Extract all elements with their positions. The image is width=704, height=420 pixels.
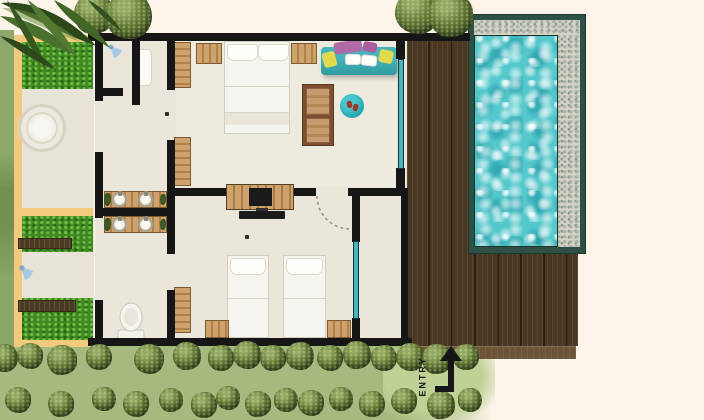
tv-screen: [239, 211, 285, 219]
tree: [359, 391, 385, 417]
tree: [5, 387, 31, 413]
entry-label: ENTRY: [418, 350, 431, 404]
double-bed: [224, 41, 290, 134]
tree: [123, 391, 149, 417]
sofa-pillow: [378, 49, 394, 65]
bed-throw: [225, 113, 289, 125]
tree: [47, 345, 77, 375]
tree: [216, 386, 240, 410]
deck: [407, 33, 468, 254]
bed-pillows: [286, 258, 323, 275]
garden-bench: [18, 300, 76, 312]
sink: [138, 192, 153, 207]
tree: [371, 345, 397, 371]
outdoor-shower-icon: [18, 264, 36, 284]
bed-pillows: [258, 44, 289, 61]
pool-water: [474, 35, 558, 247]
wall-right-stub: [396, 41, 405, 59]
tree: [274, 388, 298, 412]
palm-fronds: [0, 0, 130, 85]
wall-vanity: [95, 208, 173, 216]
tree: [17, 343, 43, 369]
tree: [260, 345, 286, 371]
tree: [298, 390, 324, 416]
sofa-pillow: [345, 54, 361, 65]
wall-interior: [167, 290, 175, 346]
rug-item: [346, 101, 352, 109]
fixture-dot: [245, 235, 249, 239]
wall-interior: [167, 140, 175, 254]
single-bed: [227, 255, 269, 338]
tree: [429, 0, 473, 37]
bed-pillows: [230, 258, 266, 275]
bed-bench: [327, 320, 351, 338]
tree: [286, 342, 314, 370]
entry-arrow-icon: [430, 344, 470, 396]
tv-console: [226, 184, 294, 210]
tree: [233, 341, 261, 369]
single-bed: [283, 255, 326, 338]
sofa-pillow: [360, 54, 377, 67]
door-swing-icon: [312, 192, 356, 234]
tree: [191, 392, 217, 418]
wardrobe: [174, 137, 191, 186]
nightstand: [291, 43, 317, 64]
bed-bench: [205, 320, 229, 338]
pool-pebble-border: [557, 35, 580, 247]
wall-top: [88, 33, 470, 41]
tree: [329, 387, 353, 411]
deck-lower: [407, 254, 578, 346]
fixture-dot: [165, 112, 169, 116]
shelf-unit: [302, 84, 334, 146]
tv-back: [249, 188, 272, 206]
nightstand: [196, 43, 222, 64]
bamboo-fence-mid: [18, 208, 93, 216]
soaking-tub: [18, 104, 66, 152]
pool-pebble-border: [474, 20, 580, 35]
tree: [86, 344, 112, 370]
garden-bench: [18, 238, 72, 249]
sink: [112, 192, 127, 207]
tree: [391, 388, 417, 414]
toilet-icon: [114, 302, 148, 342]
glass-door: [398, 59, 404, 169]
sink: [112, 217, 127, 232]
wc-door: [174, 287, 191, 333]
tree: [48, 391, 74, 417]
tree: [317, 345, 343, 371]
tree: [134, 344, 164, 374]
tree: [208, 345, 234, 371]
tree: [92, 387, 116, 411]
tree: [343, 341, 371, 369]
wall-interior: [132, 41, 140, 105]
wall-right: [401, 188, 408, 346]
tree: [159, 388, 183, 412]
glass-door: [353, 241, 359, 319]
bed-pillows: [227, 44, 258, 61]
tree: [245, 391, 271, 417]
wardrobe: [174, 42, 191, 88]
sink: [138, 217, 153, 232]
scene-canvas: ENTRY: [0, 0, 704, 420]
tree: [173, 342, 201, 370]
wall-interior: [167, 41, 175, 90]
wall-stub: [103, 88, 123, 96]
